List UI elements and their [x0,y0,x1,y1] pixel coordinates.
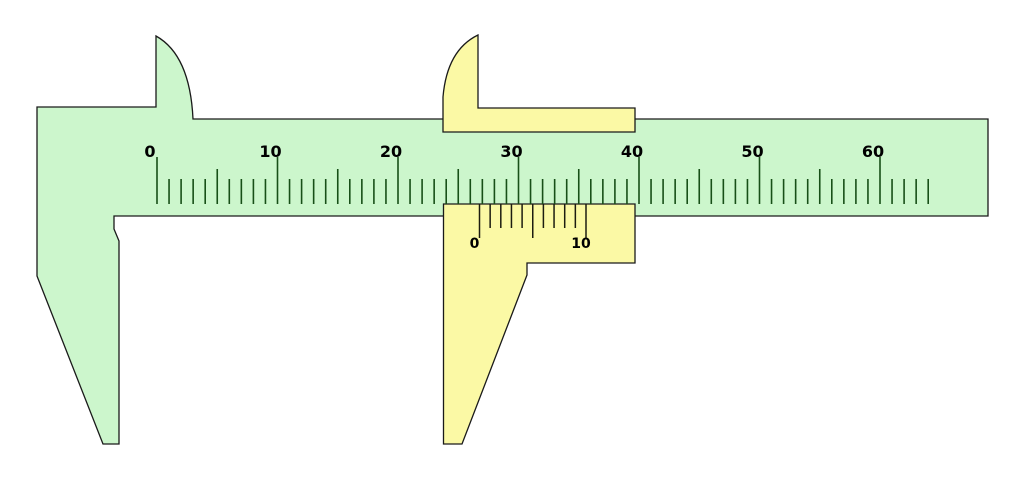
main-scale-label: 30 [500,142,522,161]
slider-upper-jaw [443,35,635,132]
main-scale-label: 20 [380,142,402,161]
caliper-diagram: 0102030405060 010 [0,0,1024,482]
main-scale-label: 60 [862,142,884,161]
vernier-scale-label: 10 [571,236,591,252]
main-scale-label: 40 [621,142,643,161]
main-scale-label: 0 [144,142,155,161]
caliper-canvas: 0102030405060 010 [0,0,1024,482]
main-scale-label: 50 [741,142,763,161]
main-scale-label: 10 [259,142,281,161]
vernier-scale-label: 0 [470,236,480,252]
